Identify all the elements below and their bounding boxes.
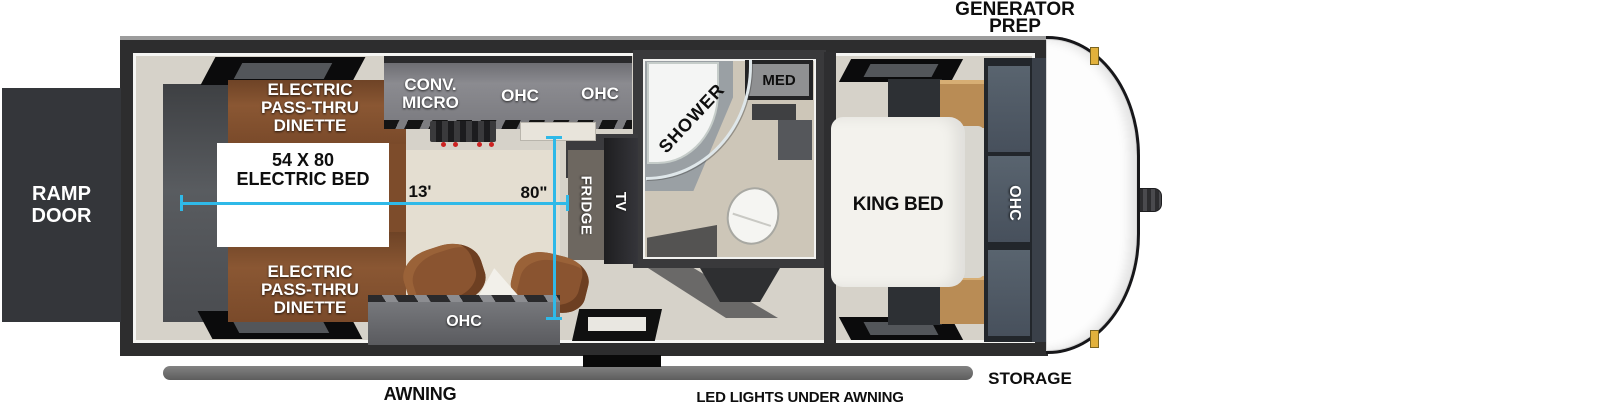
fridge-label: FRIDGE bbox=[578, 175, 595, 235]
dinette-top-line3: DINETTE bbox=[274, 116, 347, 135]
dimension-cap bbox=[566, 195, 569, 211]
bedroom-ohc-text: OHC bbox=[1005, 185, 1023, 221]
bed-width-label: 80" bbox=[508, 183, 560, 203]
generator-prep-label: GENERATORPREP bbox=[935, 1, 1095, 35]
stove-knob-icon bbox=[477, 142, 482, 147]
dinette-bottom-line1: ELECTRIC bbox=[268, 262, 353, 281]
bathroom-cabinet bbox=[778, 120, 812, 160]
king-bed-label: KING BED bbox=[831, 194, 965, 216]
ramp-door-label: RAMPDOOR bbox=[32, 183, 92, 227]
ohc-label: OHC bbox=[575, 84, 625, 104]
stove-icon bbox=[430, 121, 496, 142]
dimension-cap bbox=[180, 195, 183, 211]
ramp-door-line2: DOOR bbox=[32, 205, 92, 227]
electric-bed-line1: 54 X 80 bbox=[272, 150, 334, 170]
awning-label: AWNING bbox=[350, 384, 490, 404]
conv-micro-line1: CONV. bbox=[404, 75, 456, 94]
dinette-top-line2: PASS-THRU bbox=[261, 98, 359, 117]
ohc-label: OHC bbox=[996, 160, 1032, 246]
clearance-light-icon bbox=[1090, 330, 1099, 348]
dinette-top-line1: ELECTRIC bbox=[268, 80, 353, 99]
dinette-bottom-line2: PASS-THRU bbox=[261, 280, 359, 299]
dinette-top-label: ELECTRICPASS-THRUDINETTE bbox=[230, 81, 390, 135]
dinette-bottom-line3: DINETTE bbox=[274, 298, 347, 317]
ramp-door: RAMPDOOR bbox=[2, 88, 121, 322]
stove-knob-icon bbox=[489, 142, 494, 147]
tv-label: TV bbox=[612, 191, 629, 210]
fridge: FRIDGE bbox=[568, 150, 604, 260]
clearance-light-icon bbox=[1090, 47, 1099, 65]
electric-bed-label-box: 54 X 80ELECTRIC BED bbox=[217, 143, 389, 247]
tv-panel: TV bbox=[604, 138, 638, 264]
wardrobe-side bbox=[1032, 58, 1046, 342]
storage-label: STORAGE bbox=[965, 369, 1095, 389]
entry-door bbox=[572, 309, 662, 341]
stove-knob-icon bbox=[441, 142, 446, 147]
wardrobe-panel bbox=[988, 250, 1030, 336]
ohc-label: OHC bbox=[495, 86, 545, 106]
dinette-bottom-label: ELECTRICPASS-THRUDINETTE bbox=[230, 263, 390, 317]
conv-micro-line2: MICRO bbox=[402, 93, 459, 112]
front-cap bbox=[1046, 36, 1140, 354]
wardrobe-panel bbox=[988, 66, 1030, 152]
stove-knob-icon bbox=[453, 142, 458, 147]
led-lights-label: LED LIGHTS UNDER AWNING bbox=[690, 389, 910, 404]
generator-prep-line2: PREP bbox=[989, 16, 1041, 37]
vanity-shelf bbox=[752, 104, 796, 120]
med-label: MED bbox=[762, 72, 795, 89]
dimension-cap bbox=[546, 136, 562, 139]
garage-length-label: 13' bbox=[395, 182, 445, 202]
ohc-label: OHC bbox=[368, 313, 560, 331]
floorplan-canvas: RAMPDOOR ELECTRICPASS-THRUDINETTE ELECTR… bbox=[0, 0, 1600, 404]
entry-step bbox=[583, 355, 661, 367]
electric-bed-line2: ELECTRIC BED bbox=[236, 169, 369, 189]
dimension-cap bbox=[546, 317, 562, 320]
width-dimension-line bbox=[553, 137, 556, 319]
conv-micro-label: CONV.MICRO bbox=[388, 76, 473, 112]
medicine-cabinet: MED bbox=[745, 60, 813, 100]
ramp-door-line1: RAMP bbox=[32, 183, 91, 205]
awning-bar bbox=[163, 366, 973, 380]
